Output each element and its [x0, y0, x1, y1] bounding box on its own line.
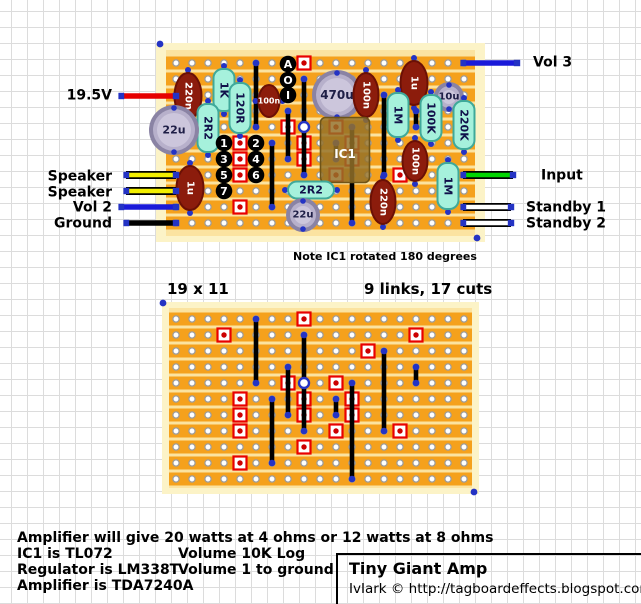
pad-5: 5 [216, 167, 233, 184]
label-ground: Ground [0, 215, 112, 231]
svg-text:7: 7 [220, 185, 228, 198]
cut-marker-c13r3 [362, 345, 375, 358]
wire-ground [123, 220, 179, 226]
pad-1: 1 [216, 135, 233, 152]
svg-text:100K: 100K [425, 102, 438, 134]
svg-text:1: 1 [220, 137, 228, 150]
link-c11r6-r7 [333, 396, 340, 419]
board-corner-dot [471, 489, 478, 496]
links-cuts-count: 9 links, 17 cuts [364, 280, 492, 298]
hole-grid [173, 60, 467, 226]
component-cap-470u: 470u [312, 70, 362, 120]
footer-col1-line-2: Regulator is LM338T [17, 562, 179, 578]
wire-19-5v [118, 93, 179, 99]
link-c9r5-r8 [301, 124, 308, 179]
wire-standby-1 [460, 204, 514, 210]
svg-text:1u: 1u [185, 181, 196, 195]
label-vol-2: Vol 2 [0, 199, 112, 215]
link-c14r3-r8 [381, 348, 388, 435]
component-cap-100n-b: 100n [354, 67, 379, 123]
top-board: 220n1K120R2R222u100n470u100n1u1M10u100K2… [149, 41, 485, 242]
component-cap-100n-c: 100n [403, 135, 428, 187]
link-c14r3-r8 [381, 92, 388, 179]
svg-text:22u: 22u [162, 124, 185, 137]
cut-marker-c9r6 [298, 137, 311, 150]
component-cap-1u-a: 1u [401, 55, 428, 111]
pad-o: O [280, 72, 297, 89]
component-cap-1u-b: 1u [177, 160, 204, 216]
title-box: Tiny Giant Amp IvIark © http://tagboarde… [336, 553, 641, 604]
cut-marker-c4r2 [218, 73, 231, 86]
component-cap-220n-b: 220n [371, 174, 396, 230]
wire-standby-2 [460, 220, 514, 226]
cut-marker-c9r1 [298, 57, 311, 70]
component-res-1k: 1K [214, 63, 235, 117]
footer-col1-line-1: IC1 is TL072 [17, 546, 113, 562]
svg-text:220n: 220n [183, 82, 194, 110]
svg-text:IC1: IC1 [334, 147, 356, 161]
svg-text:10u: 10u [438, 92, 459, 103]
cut-marker-c5r8 [234, 425, 247, 438]
pad-markers: AOI1234567 [216, 56, 297, 200]
link-c8r4-r7 [285, 108, 292, 163]
label-19-5v: 19.5V [0, 87, 112, 103]
cut-marker-c5r10 [234, 201, 247, 214]
svg-text:2R2: 2R2 [299, 184, 323, 197]
pad-a: A [280, 56, 297, 73]
component-res-220k: 220K [454, 95, 475, 155]
link-c12r5-r11 [349, 380, 356, 483]
svg-text:3: 3 [220, 153, 228, 166]
wire-links [253, 316, 420, 483]
component-res-2r2-a: 2R2 [198, 98, 219, 158]
svg-text:120R: 120R [234, 92, 247, 124]
link-c9r5-r8 [301, 380, 308, 435]
track-cuts [218, 313, 423, 470]
components: 220n1K120R2R222u100n470u100n1u1M10u100K2… [149, 55, 475, 232]
cut-marker-c12r7 [346, 153, 359, 166]
cut-marker-c16r2 [410, 73, 423, 86]
svg-text:1M: 1M [442, 177, 455, 196]
cut-marker-c12r6 [346, 137, 359, 150]
svg-text:100n: 100n [361, 81, 372, 109]
label-vol-3: Vol 3 [533, 54, 572, 70]
cut-marker-c9r7 [298, 153, 311, 166]
svg-text:100n: 100n [410, 147, 421, 175]
cut-marker-c9r9 [298, 185, 311, 198]
svg-text:5: 5 [220, 169, 228, 182]
board-corner-dot [474, 235, 481, 242]
link-c12r5-r11 [349, 124, 356, 227]
pad-2: 2 [248, 135, 265, 152]
wire-vol-2 [118, 204, 179, 210]
pad-4: 4 [248, 151, 265, 168]
cut-marker-c4r2 [218, 329, 231, 342]
bottom-board-cuts-links [160, 300, 479, 496]
cut-marker-c9r7 [298, 409, 311, 422]
pad-7: 7 [216, 183, 233, 200]
link-c16r4-r5 [413, 108, 420, 131]
cut-marker-c5r6 [234, 137, 247, 150]
wire-vol-3 [460, 60, 520, 66]
link-c9r2-r5 [301, 332, 308, 387]
svg-text:1K: 1K [218, 82, 231, 99]
svg-text:470u: 470u [320, 88, 354, 102]
component-cap-10u: 10u [434, 82, 464, 112]
board-grid-size: 19 x 11 [167, 280, 229, 298]
component-cap-22u-b: 22u [286, 198, 320, 232]
cut-marker-c15r8 [394, 169, 407, 182]
svg-text:O: O [283, 74, 292, 87]
component-cap-100n-a: 100n [253, 85, 286, 117]
svg-text:220n: 220n [378, 188, 389, 216]
wire-speaker-1 [123, 172, 179, 178]
link-c7r6-r10 [269, 396, 276, 467]
copper-strips [166, 57, 475, 230]
cut-marker-c5r10 [234, 457, 247, 470]
label-input: Input [541, 167, 583, 183]
component-cap-22u-a: 22u [149, 105, 199, 155]
track-cuts [218, 57, 423, 214]
link-c9r2-r5 [301, 76, 308, 131]
svg-text:220K: 220K [458, 109, 471, 141]
svg-text:100n: 100n [258, 97, 281, 106]
component-ic1: IC1 [321, 118, 370, 183]
credit-url: IvIark © http://tagboardeffects.blogspot… [349, 581, 641, 597]
link-c11r6-r7 [333, 140, 340, 163]
board-corner-dot [160, 300, 167, 307]
layout-canvas: 220n1K120R2R222u100n470u100n1u1M10u100K2… [0, 0, 641, 604]
project-title: Tiny Giant Amp [349, 559, 487, 578]
cut-marker-c5r7 [234, 409, 247, 422]
svg-text:22u: 22u [292, 210, 313, 221]
cut-marker-c8r5 [282, 121, 295, 134]
cut-marker-c9r1 [298, 313, 311, 326]
wire-links [253, 60, 420, 227]
component-res-1m-b: 1M [438, 157, 459, 215]
link-c7r6-r10 [269, 140, 276, 211]
component-res-100k: 100K [421, 89, 442, 147]
cut-marker-c8r5 [282, 377, 295, 390]
footer-col2-line-1: Volume 10K Log [178, 546, 305, 562]
cut-marker-c11r8 [330, 425, 343, 438]
component-res-2r2-b: 2R2 [282, 182, 340, 199]
link-c16r4-r5 [413, 364, 420, 387]
svg-text:1u: 1u [409, 76, 420, 90]
note-ic1-rotated: Note IC1 rotated 180 degrees [293, 250, 477, 263]
hole-grid [173, 316, 467, 482]
pad-3: 3 [216, 151, 233, 168]
component-cap-220n-a: 220n [175, 67, 202, 125]
cut-marker-c5r8 [234, 169, 247, 182]
cut-marker-c11r5 [330, 121, 343, 134]
footer-col1-line-3: Amplifier is TDA7240A [17, 578, 194, 594]
link-c6r1-r5 [253, 60, 260, 131]
svg-text:1M: 1M [392, 106, 405, 125]
cut-marker-c11r5 [330, 377, 343, 390]
cut-marker-c5r7 [234, 153, 247, 166]
cut-marker-c9r9 [298, 441, 311, 454]
label-speaker-1: Speaker [0, 168, 112, 184]
cut-marker-c12r7 [346, 409, 359, 422]
component-res-120r: 120R [230, 77, 251, 139]
pad-6: 6 [248, 167, 265, 184]
svg-text:4: 4 [252, 153, 260, 166]
label-standby-2: Standby 2 [526, 215, 606, 231]
wire-input [460, 172, 516, 178]
footer-power-note: Amplifier will give 20 watts at 4 ohms o… [17, 530, 493, 546]
board-corner-dot [157, 41, 164, 48]
link-c8r4-r7 [285, 364, 292, 419]
component-res-1m-a: 1M [388, 87, 409, 143]
link-c6r1-r5 [253, 316, 260, 387]
svg-text:I: I [286, 89, 290, 102]
pad-i: I [280, 87, 297, 104]
cut-marker-c13r3 [362, 89, 375, 102]
label-standby-1: Standby 1 [526, 199, 606, 215]
link-junction-marker [299, 378, 309, 388]
cut-marker-c5r6 [234, 393, 247, 406]
cut-marker-c9r6 [298, 393, 311, 406]
copper-strips [169, 313, 472, 486]
svg-text:A: A [284, 58, 293, 71]
wire-speaker-2 [123, 188, 179, 194]
footer-col2-line-2: Volume 1 to ground [178, 562, 334, 578]
cut-marker-c15r8 [394, 425, 407, 438]
cut-marker-c11r8 [330, 169, 343, 182]
cut-marker-c16r2 [410, 329, 423, 342]
link-junction-marker [299, 122, 309, 132]
label-speaker-2: Speaker [0, 184, 112, 200]
io-wires [118, 60, 520, 226]
svg-text:2: 2 [252, 137, 260, 150]
svg-text:2R2: 2R2 [202, 116, 215, 140]
svg-text:6: 6 [252, 169, 260, 182]
cut-marker-c12r6 [346, 393, 359, 406]
